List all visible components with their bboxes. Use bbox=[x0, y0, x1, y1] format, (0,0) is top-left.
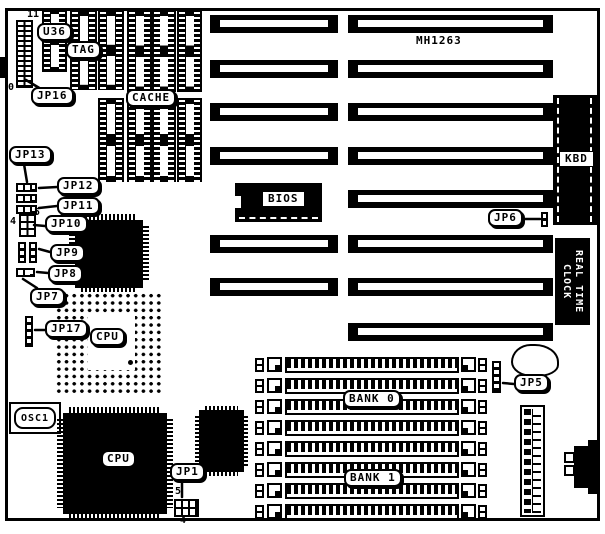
motherboard-diagram: OSC1 REAL TIME CLOCK bbox=[0, 0, 605, 534]
label-jp5: JP5 bbox=[514, 374, 549, 392]
label-cache: CACHE bbox=[126, 89, 176, 107]
label-bios: BIOS bbox=[262, 191, 305, 207]
label-bank1: BANK 1 bbox=[344, 469, 402, 487]
jp1-pin4: 4 bbox=[180, 515, 186, 526]
jp16-pin11: 11 bbox=[27, 9, 39, 20]
label-jp9: JP9 bbox=[50, 244, 85, 262]
label-mh1263: MH1263 bbox=[416, 34, 462, 47]
label-kbd: KBD bbox=[559, 151, 594, 167]
label-cpu-chip: CPU bbox=[101, 450, 136, 468]
jp10-pin5: 5 bbox=[34, 207, 40, 218]
label-jp7: JP7 bbox=[30, 288, 65, 306]
jp1-pin5: 5 bbox=[175, 486, 181, 497]
label-jp8: JP8 bbox=[48, 265, 83, 283]
label-u36: U36 bbox=[37, 23, 72, 41]
callout-pointer-lines bbox=[0, 0, 605, 534]
jp16-pin0: 0 bbox=[8, 82, 14, 93]
label-jp17: JP17 bbox=[45, 320, 88, 338]
label-bank0: BANK 0 bbox=[343, 390, 401, 408]
label-jp6: JP6 bbox=[488, 209, 523, 227]
jp10-pin4: 4 bbox=[10, 216, 16, 227]
label-jp13: JP13 bbox=[9, 146, 52, 164]
label-jp16: JP16 bbox=[31, 87, 74, 105]
label-tag: TAG bbox=[66, 41, 101, 59]
label-jp12: JP12 bbox=[57, 177, 100, 195]
label-cpu-socket: CPU bbox=[90, 328, 125, 346]
label-jp10: JP10 bbox=[45, 215, 88, 233]
label-jp1: JP1 bbox=[170, 463, 205, 481]
label-jp11: JP11 bbox=[57, 197, 100, 215]
